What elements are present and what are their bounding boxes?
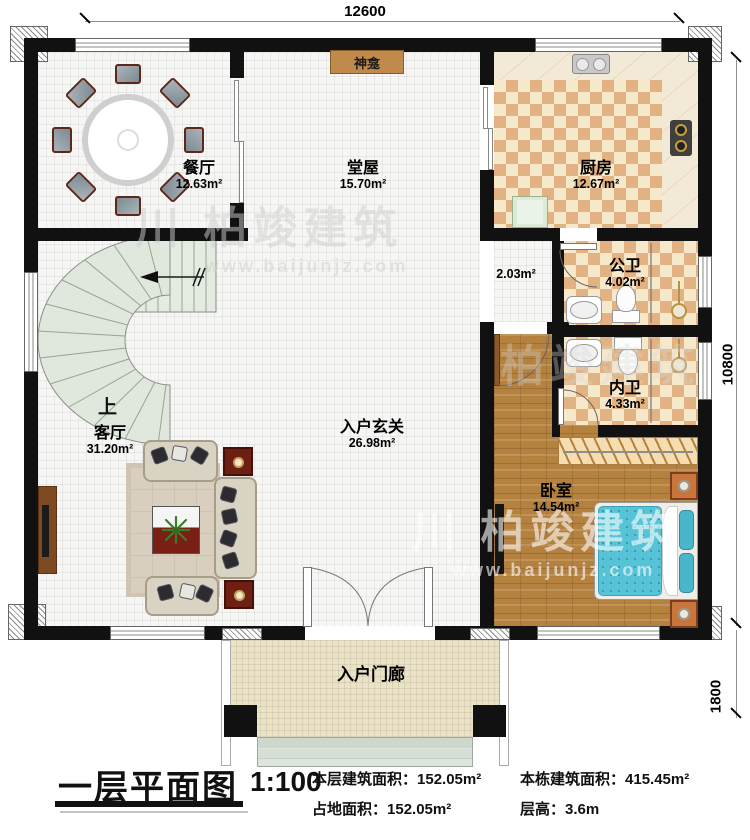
porch-steps: [257, 737, 473, 767]
room-label-dining: 餐厅 12.63m²: [176, 161, 223, 191]
porch-side-right: [499, 640, 509, 766]
dim-line-top: [85, 21, 680, 22]
porch-pillar-right: [473, 705, 506, 737]
total-area-text: 本栋建筑面积：415.45m²: [520, 768, 689, 789]
room-label-kitchen: 厨房 12.67m²: [573, 161, 620, 191]
stairs-up-label: 上: [98, 392, 117, 419]
room-label-hall: 堂屋 15.70m²: [340, 161, 387, 191]
room-label-private-bath: 内卫 4.33m²: [605, 381, 645, 411]
room-label-living: 客厅 31.20m²: [87, 426, 134, 456]
floor-area-text: 本层建筑面积：152.05m²: [312, 768, 481, 789]
dim-line-right-porch: [736, 630, 737, 718]
title-underline-thin: [60, 811, 248, 813]
porch-floor: [230, 640, 500, 737]
room-label-foyer: 入户玄关 26.98m²: [340, 420, 404, 450]
dim-top-label: 12600: [335, 3, 395, 20]
floor-plan: 神龛: [0, 0, 750, 840]
drawing-scale: 1:100: [250, 766, 322, 798]
room-label-bedroom: 卧室 14.54m²: [533, 484, 580, 514]
room-label-corridor: 2.03m²: [496, 268, 536, 281]
porch-pillar-left: [224, 705, 257, 737]
title-underline-thick: [55, 801, 243, 807]
storey-height-text: 层高：3.6m: [520, 798, 599, 819]
dim-right-porch-label: 1800: [708, 669, 725, 725]
porch-side-left: [221, 640, 231, 766]
land-area-text: 占地面积：152.05m²: [312, 798, 451, 819]
room-label-public-bath: 公卫 4.02m²: [605, 259, 645, 289]
room-label-porch: 入户门廊: [337, 666, 405, 684]
dim-right-main-label: 10800: [720, 330, 737, 400]
